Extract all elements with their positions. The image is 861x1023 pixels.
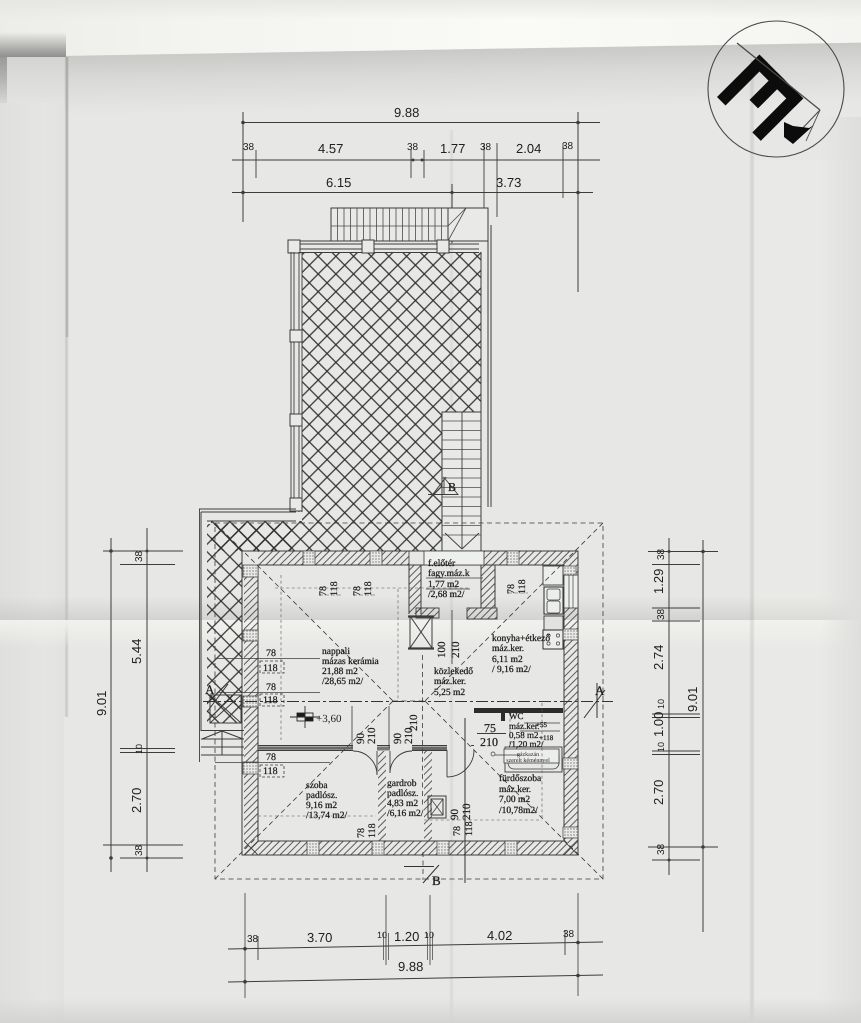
svg-text:/28,65 m2/: /28,65 m2/: [322, 677, 364, 687]
svg-text:78: 78: [356, 828, 367, 838]
svg-text:gardrob: gardrob: [387, 779, 417, 789]
svg-text:7,00 m2: 7,00 m2: [499, 795, 530, 805]
svg-text:fürdőszoba: fürdőszoba: [499, 774, 542, 784]
svg-text:WC: WC: [509, 711, 524, 721]
svg-text:2.74: 2.74: [651, 645, 666, 670]
svg-text:9.01: 9.01: [685, 687, 700, 712]
svg-text:5,25 m2: 5,25 m2: [434, 688, 465, 698]
svg-text:210: 210: [480, 735, 498, 749]
svg-text:78: 78: [318, 586, 329, 596]
svg-text:máz.ker.: máz.ker.: [499, 785, 531, 795]
svg-text:6.15: 6.15: [326, 175, 351, 190]
svg-text:+3,60: +3,60: [316, 713, 342, 725]
svg-text:78: 78: [506, 584, 517, 594]
svg-text:1.00: 1.00: [651, 712, 666, 737]
svg-text:4.02: 4.02: [487, 928, 512, 943]
svg-text:1.29: 1.29: [651, 569, 666, 594]
svg-text:9.88: 9.88: [398, 959, 423, 974]
svg-text:2.04: 2.04: [516, 141, 541, 156]
svg-text:/10,78m2/: /10,78m2/: [499, 806, 538, 816]
svg-text:38: 38: [656, 548, 667, 560]
svg-text:10: 10: [424, 930, 434, 940]
svg-text:padlósz.: padlósz.: [306, 791, 337, 801]
svg-text:38: 38: [243, 142, 255, 153]
svg-text:38: 38: [480, 142, 492, 153]
svg-text:+55: +55: [536, 721, 547, 729]
svg-text:118: 118: [263, 766, 278, 777]
svg-text:38: 38: [134, 844, 145, 856]
svg-text:10: 10: [656, 699, 666, 709]
svg-text:9,16 m2: 9,16 m2: [306, 801, 337, 811]
svg-text:10: 10: [134, 744, 144, 754]
svg-text:1.77: 1.77: [440, 141, 465, 156]
svg-text:4.57: 4.57: [318, 141, 343, 156]
svg-text:9.88: 9.88: [394, 105, 419, 120]
svg-text:+118: +118: [539, 734, 554, 742]
svg-text:118: 118: [367, 823, 378, 838]
svg-text:118: 118: [464, 821, 475, 836]
svg-text:B: B: [432, 873, 441, 888]
svg-text:máz.ker.: máz.ker.: [492, 644, 524, 654]
svg-text:2.70: 2.70: [129, 788, 144, 813]
svg-text:38: 38: [656, 843, 667, 855]
svg-text:118: 118: [263, 663, 278, 674]
svg-text:szoba: szoba: [306, 781, 328, 791]
svg-text:2.70: 2.70: [651, 780, 666, 805]
svg-text:38: 38: [407, 142, 419, 153]
svg-text:B: B: [448, 480, 456, 494]
svg-text:mázas kerámia: mázas kerámia: [322, 657, 379, 667]
svg-text:118: 118: [329, 581, 340, 596]
svg-text:210: 210: [461, 803, 473, 820]
svg-text:1,77 m2: 1,77 m2: [428, 580, 459, 590]
svg-text:38: 38: [247, 934, 259, 945]
svg-text:1.20: 1.20: [394, 929, 419, 944]
svg-text:gázkazán: gázkazán: [517, 751, 539, 758]
svg-text:/2,68 m2/: /2,68 m2/: [428, 590, 465, 600]
svg-text:10: 10: [377, 930, 387, 940]
svg-text:78: 78: [266, 752, 276, 763]
svg-text:38: 38: [134, 550, 145, 562]
svg-text:5.44: 5.44: [129, 639, 144, 664]
svg-text:78: 78: [452, 826, 463, 836]
svg-text:közlekedő: közlekedő: [434, 667, 473, 677]
svg-text:9.01: 9.01: [94, 691, 109, 716]
svg-text:38: 38: [562, 141, 574, 152]
svg-text:118: 118: [363, 581, 374, 596]
svg-text:210: 210: [408, 714, 420, 731]
svg-text:75: 75: [484, 721, 496, 735]
svg-text:210: 210: [450, 641, 462, 658]
svg-text:118: 118: [263, 695, 278, 706]
svg-text:118: 118: [517, 579, 528, 594]
svg-text:100: 100: [436, 641, 448, 658]
svg-text:f.előtér: f.előtér: [428, 559, 456, 569]
svg-text:3.70: 3.70: [307, 930, 332, 945]
svg-text:3.73: 3.73: [496, 175, 521, 190]
svg-text:90: 90: [449, 809, 461, 821]
svg-text:fagy.máz.k: fagy.máz.k: [428, 569, 470, 579]
svg-text:A: A: [205, 682, 215, 697]
svg-text:10: 10: [656, 742, 666, 752]
svg-text:/ 9,16 m2/: / 9,16 m2/: [492, 665, 531, 675]
svg-text:padlósz.: padlósz.: [387, 789, 418, 799]
svg-text:/6,16 m2/: /6,16 m2/: [387, 809, 424, 819]
svg-text:konyha+étkező: konyha+étkező: [492, 634, 550, 644]
svg-text:78: 78: [266, 682, 276, 693]
svg-text:21,88 m2: 21,88 m2: [322, 667, 358, 677]
svg-text:38: 38: [563, 929, 575, 940]
svg-text:78: 78: [352, 586, 363, 596]
svg-text:nappali: nappali: [322, 647, 350, 657]
svg-text:A: A: [595, 683, 605, 698]
svg-text:6,11 m2: 6,11 m2: [492, 655, 523, 665]
svg-text:máz.ker.: máz.ker.: [434, 677, 466, 687]
svg-text:210: 210: [366, 727, 378, 744]
svg-text:4,83 m2: 4,83 m2: [387, 799, 418, 809]
svg-text:/13,74 m2/: /13,74 m2/: [306, 811, 348, 821]
svg-text:78: 78: [266, 648, 276, 659]
svg-text:szerelt kéménnyel: szerelt kéménnyel: [506, 757, 550, 764]
svg-text:38: 38: [656, 608, 667, 620]
